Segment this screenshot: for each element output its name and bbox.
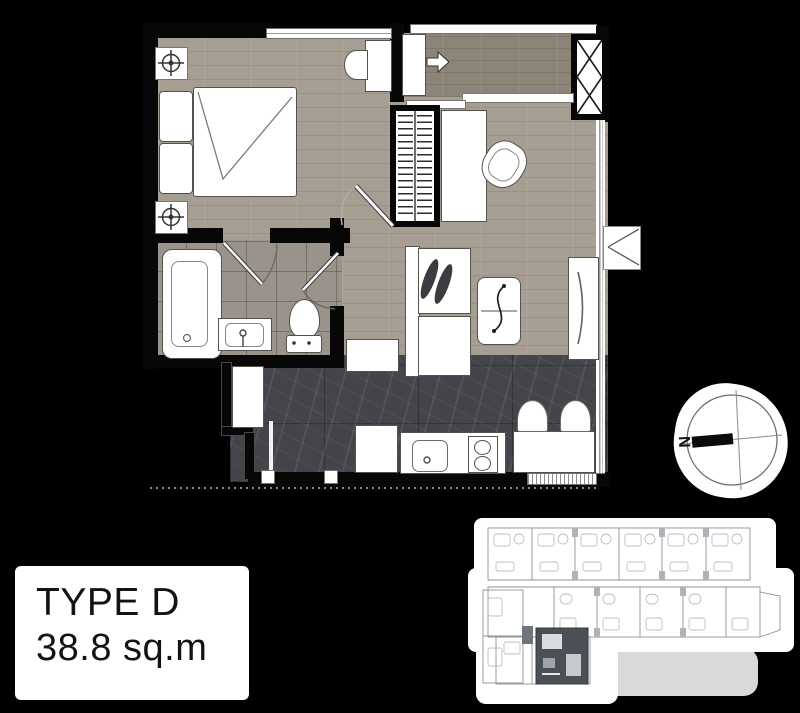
- ceiling-light-glyphs: [158, 50, 184, 230]
- bathroom-door-leaf: [224, 243, 262, 284]
- tub-drain: [184, 335, 191, 342]
- hall-door-arc: [303, 290, 335, 309]
- compass-rose-icon: N: [666, 378, 798, 506]
- entry-arrow-icon: [427, 52, 449, 72]
- hall-door-leaf: [303, 253, 338, 290]
- compass-north-bar: [692, 433, 734, 448]
- sink-drain: [424, 457, 430, 463]
- keyplan-highlight-unit: [536, 628, 588, 684]
- table-squiggle: [494, 286, 504, 331]
- ac-louver-lines: [608, 229, 639, 265]
- shaft-cross-lines: [577, 40, 602, 114]
- tv-screen-curve: [578, 272, 583, 344]
- building-keyplan: [458, 508, 798, 711]
- vanity-faucet: [240, 330, 246, 336]
- floorplan-page: N: [0, 0, 800, 713]
- unit-title-card: TYPE D 38.8 sq.m: [15, 566, 249, 700]
- bathroom-door-arc: [262, 245, 277, 284]
- unit-area-label: 38.8 sq.m: [36, 626, 249, 671]
- toilet-button: [307, 341, 311, 345]
- toilet-button: [292, 341, 296, 345]
- compass-north-label: N: [675, 436, 692, 448]
- compass: N: [666, 378, 798, 506]
- bedroom-door-leaf: [356, 186, 393, 226]
- keyplan-drawing: [458, 508, 798, 711]
- bed-duvet-fold: [198, 92, 292, 179]
- bedroom-door-arc: [341, 186, 356, 225]
- unit-type-label: TYPE D: [36, 580, 249, 626]
